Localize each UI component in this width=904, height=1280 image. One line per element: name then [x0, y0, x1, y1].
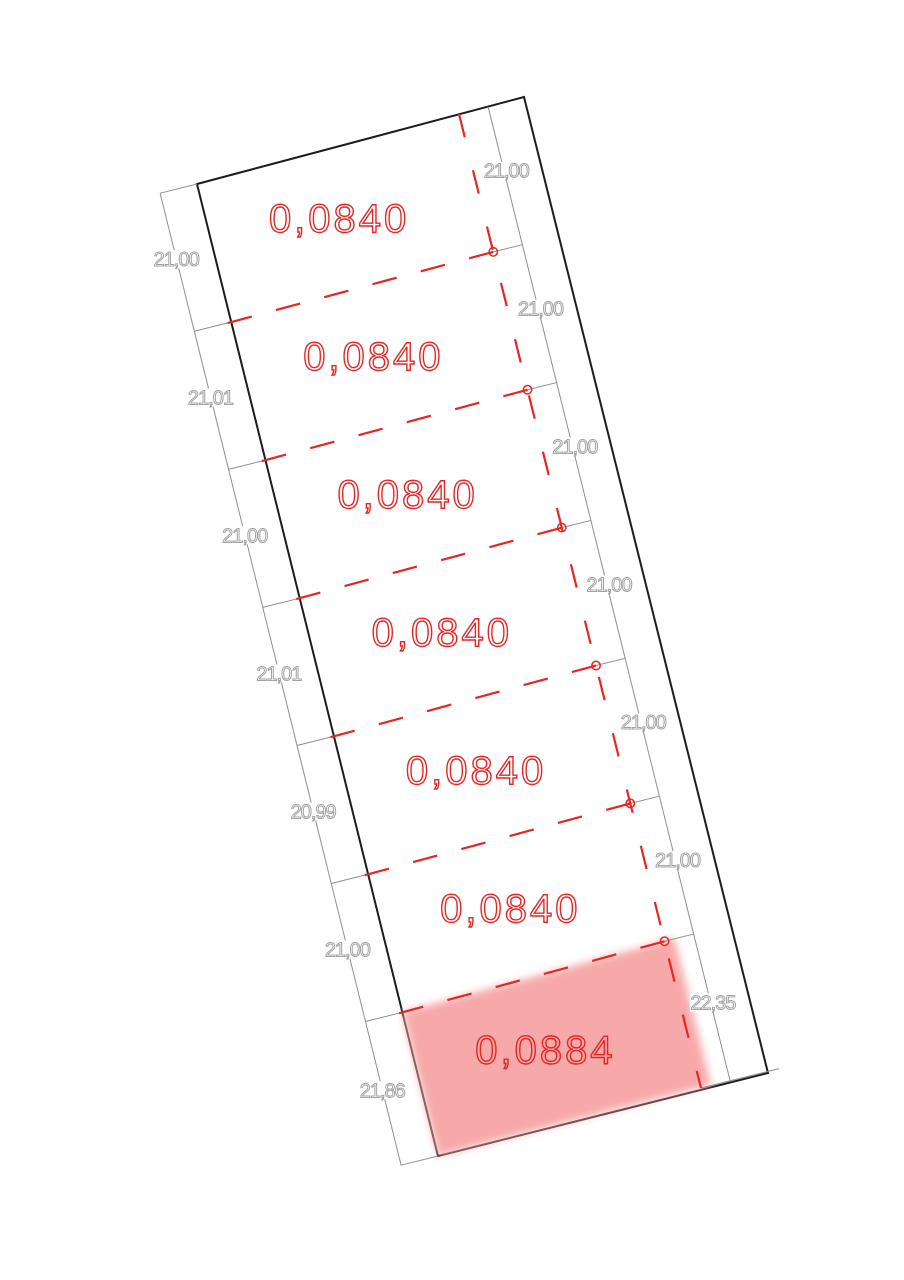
dimension-label: 21,00 [222, 525, 268, 547]
dimension-label: 21,01 [256, 663, 302, 685]
parcel-area-label: 0,0840 [303, 335, 443, 379]
dimension-label: 21,00 [552, 436, 598, 458]
dimension-label: 21,00 [518, 299, 564, 321]
left-dimension-tick [229, 460, 266, 469]
parcel-area-label: 0,0840 [440, 887, 580, 931]
parcel-area-label: 0,0884 [475, 1028, 615, 1072]
dimension-label: 22,35 [690, 992, 736, 1014]
parcel-area-label: 0,0840 [337, 473, 477, 517]
dimension-label: 21,00 [586, 574, 632, 596]
dimension-label: 21,00 [154, 249, 200, 271]
drawing-canvas: 21,0021,0021,0121,0021,0021,0021,0121,00… [0, 0, 904, 1280]
dimension-label: 21,01 [188, 387, 234, 409]
left-dimension-tick [263, 598, 300, 607]
parcel-area-label: 0,0840 [406, 749, 546, 793]
left-dimension-tick [331, 874, 368, 883]
dimension-label: 21,86 [360, 1080, 406, 1102]
parcel-plan-drawing: 21,0021,0021,0121,0021,0021,0021,0121,00… [0, 0, 904, 1280]
left-dimension-tick [401, 1156, 438, 1165]
left-dimension-tick [297, 736, 334, 745]
left-dimension-tick [194, 322, 231, 331]
dimension-label: 20,99 [291, 801, 337, 823]
left-dimension-tick [365, 1012, 402, 1021]
dimension-label: 21,00 [655, 850, 701, 872]
dimension-label: 21,00 [484, 161, 530, 183]
dimension-label: 21,00 [621, 712, 667, 734]
dimension-label: 21,00 [325, 939, 371, 961]
left-dimension-tick [160, 184, 197, 193]
parcel-area-label: 0,0840 [372, 611, 512, 655]
parcel-area-label: 0,0840 [269, 197, 409, 241]
